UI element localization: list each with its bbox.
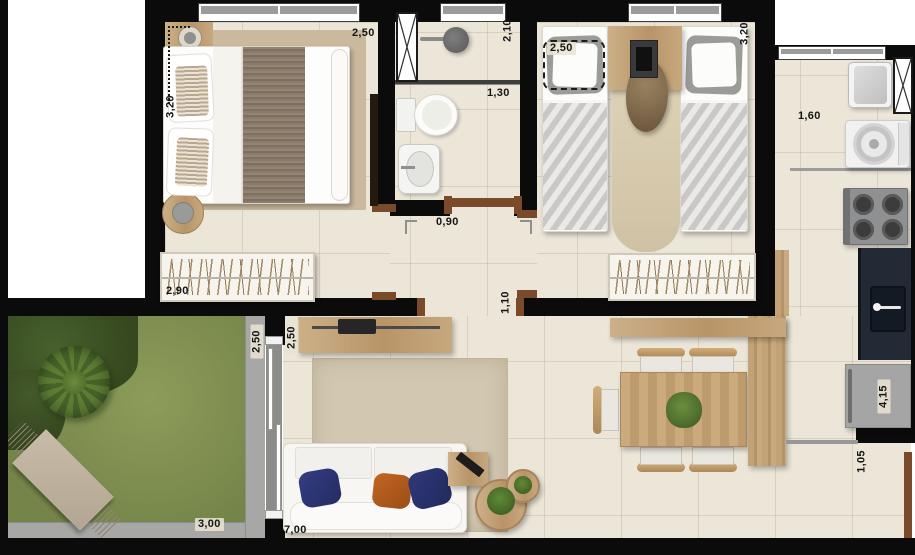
toilet-tank (396, 98, 416, 132)
entry-door-frame (904, 452, 912, 538)
window-mullion (674, 5, 676, 20)
bedroom1-stool-lamp-icon (172, 202, 194, 224)
ventilation-shaft-icon (396, 12, 418, 82)
window-sill (443, 6, 503, 14)
dining-plant (666, 392, 702, 428)
ventilation-shaft-icon (893, 57, 913, 114)
wall-bathroom-bedroom2 (520, 0, 537, 214)
wall-entry-stub (856, 428, 913, 443)
door-hinge-mark (520, 220, 532, 234)
wall-bottom (0, 538, 915, 555)
shower-head-icon (443, 27, 469, 53)
bed-blanket (243, 47, 305, 203)
dimension-label-kitchen-run: 4,15 (878, 380, 891, 414)
dimension-label-hall-door: 0,90 (436, 216, 459, 229)
stove-burner-icon (882, 219, 903, 240)
bedroom2-window (628, 3, 722, 22)
tv-soundbar (312, 326, 440, 329)
bedroom2-door-frame (517, 210, 537, 218)
chair-seat (692, 447, 734, 465)
dimension-label-living-depth: 2,50 (286, 321, 299, 355)
kitchen-faucet-base (873, 303, 881, 311)
bed-sheet-fold (213, 47, 243, 203)
wall-bedroom1-bathroom (378, 0, 395, 212)
window-mullion (831, 48, 833, 58)
dining-chair (689, 445, 737, 472)
sliding-door-pane (276, 424, 281, 512)
dining-divider-cabinet (748, 316, 786, 466)
half-wall-line (786, 440, 858, 444)
laundry-tub-basin (854, 66, 887, 104)
single-bed-right-pillow-inner (691, 42, 737, 88)
sliding-door-cap (265, 510, 283, 519)
chair-seat (640, 447, 682, 465)
kitchen-divider-cabinet (775, 250, 789, 316)
bathroom-door-leaf (450, 198, 516, 207)
washing-machine-drum-center (869, 139, 879, 149)
wall-left-border (0, 0, 8, 555)
bedroom1-door-leaf (370, 94, 378, 206)
window-mullion (278, 5, 280, 20)
bedroom2-wardrobe (608, 253, 756, 301)
bedroom2-door-frame (517, 290, 537, 298)
bathroom-window (440, 3, 506, 22)
stove-burner-icon (882, 194, 903, 215)
wall-bathroom-bottom (390, 200, 450, 216)
coffee-table-small-plant (514, 476, 532, 494)
sofa-pillow-orange (371, 472, 412, 510)
single-bed-left-blanket (543, 100, 607, 230)
tv-icon (338, 319, 376, 334)
dimension-label-entry-passage: 1,05 (856, 445, 869, 479)
dimension-label-bedroom1-width: 2,50 (352, 27, 375, 40)
bathroom-faucet-icon (401, 166, 415, 169)
stove-burner-icon (853, 219, 874, 240)
dimension-label-bedroom2-height: 3,20 (739, 17, 752, 51)
dimension-label-bedroom1-wardrobe: 2,90 (166, 285, 189, 298)
washing-machine-panel (898, 123, 909, 165)
sliding-door-pane (268, 348, 273, 430)
bed-foot-roll (331, 49, 348, 201)
palm-tree-center (62, 370, 86, 394)
dimension-label-hall-opening: 1,10 (500, 286, 513, 320)
dimension-label-bedroom2-bed: 2,50 (547, 42, 576, 55)
refrigerator-handle (848, 369, 852, 423)
dimension-label-bedroom1-height: 3,20 (165, 90, 178, 124)
dining-counter (610, 318, 786, 337)
dimension-label-garden-width: 3,00 (195, 518, 224, 531)
dining-chair (637, 348, 685, 375)
dimension-label-living-width: 7,00 (284, 524, 307, 537)
floor-plan: 3,20 2,50 2,90 2,10 1,30 2,50 3,20 1,60 … (0, 0, 915, 555)
dining-chair (689, 348, 737, 375)
dining-chair (637, 445, 685, 472)
bathroom-sink-bowl (406, 151, 434, 187)
coffee-table-plant (487, 487, 515, 515)
bedroom1-window (198, 3, 360, 22)
counter-edge-line (790, 168, 911, 171)
hall-opening-frame (417, 298, 425, 316)
toilet-bowl-inner (422, 100, 452, 130)
sliding-door-cap (265, 336, 283, 345)
dimension-label-kitchen-width: 1,60 (798, 110, 821, 123)
chair-seat (601, 389, 619, 431)
stove-burner-icon (853, 194, 874, 215)
kitchen-window (778, 46, 886, 60)
bedroom2-monitor-screen (636, 47, 652, 71)
dimension-label-bathroom-width: 1,30 (487, 87, 510, 100)
dining-chair (593, 386, 621, 434)
single-bed-right-blanket (681, 100, 747, 230)
bed-accent-cushion (175, 137, 209, 187)
wardrobe-rail (162, 277, 313, 279)
dimension-label-garden-depth: 2,50 (251, 325, 264, 359)
hall-opening-frame (516, 298, 524, 316)
dimension-label-bathroom-shower: 2,10 (502, 14, 515, 48)
door-hinge-mark (405, 220, 417, 234)
wardrobe-rail (610, 277, 754, 279)
bedroom1-door-frame (372, 292, 396, 300)
bathroom-door-frame (444, 196, 452, 214)
